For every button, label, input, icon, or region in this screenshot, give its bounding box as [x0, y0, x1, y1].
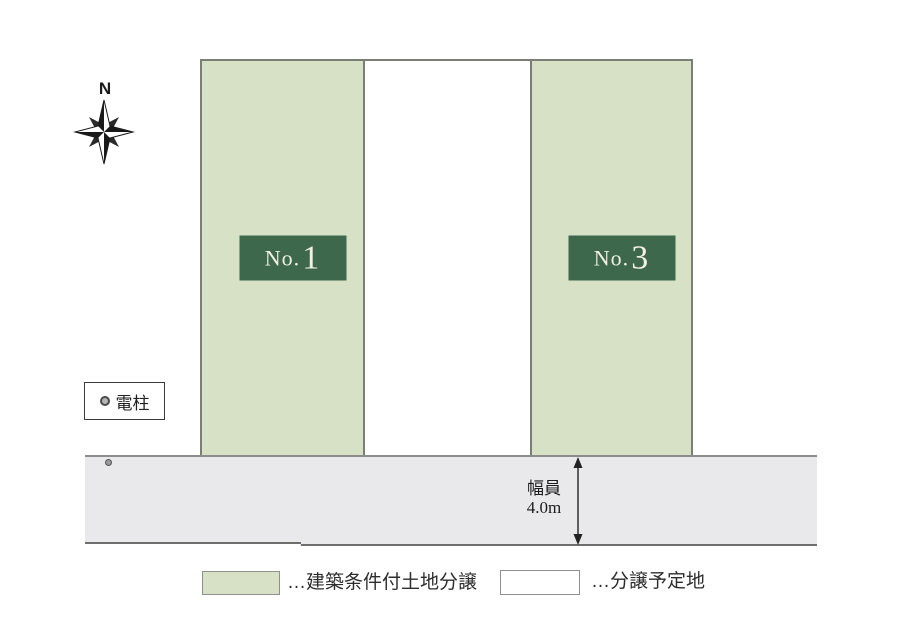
legend-label-conditional-land: …建築条件付土地分譲 [287, 570, 477, 595]
road-width-label-line2: 4.0m [518, 498, 570, 517]
legend-swatch-white [500, 570, 580, 595]
plot-no1-label: No. 1 [239, 236, 346, 281]
plot-middle [365, 61, 530, 455]
road [85, 455, 817, 546]
legend-label-planned-land: …分譲予定地 [591, 569, 705, 594]
road-width-label-line1: 幅員 [518, 479, 570, 498]
plot-no3-label-prefix: No. [594, 247, 629, 269]
compass-north-label: N [99, 79, 111, 98]
site-plan: N No. 1 No. 3 電柱 [0, 0, 900, 630]
legend-swatch-green [202, 571, 280, 595]
utility-pole-callout: 電柱 [84, 382, 165, 420]
road-edge-right [301, 544, 817, 546]
utility-pole-label: 電柱 [116, 389, 150, 414]
utility-pole-icon [100, 396, 110, 406]
road-width-arrow-icon [570, 457, 586, 545]
plot-no1-label-prefix: No. [265, 247, 300, 269]
plot-no3: No. 3 [532, 61, 691, 455]
road-width-label: 幅員 4.0m [518, 479, 570, 517]
road-edge-mask [85, 544, 300, 547]
compass-rose-icon: N [69, 76, 139, 168]
plot-no3-label: No. 3 [568, 236, 675, 281]
plot-no1: No. 1 [202, 61, 363, 455]
plot-no1-label-number: 1 [302, 241, 320, 275]
plot-no3-label-number: 3 [631, 241, 649, 275]
utility-pole-dot [105, 459, 112, 466]
plot-block: No. 1 No. 3 [200, 59, 693, 457]
